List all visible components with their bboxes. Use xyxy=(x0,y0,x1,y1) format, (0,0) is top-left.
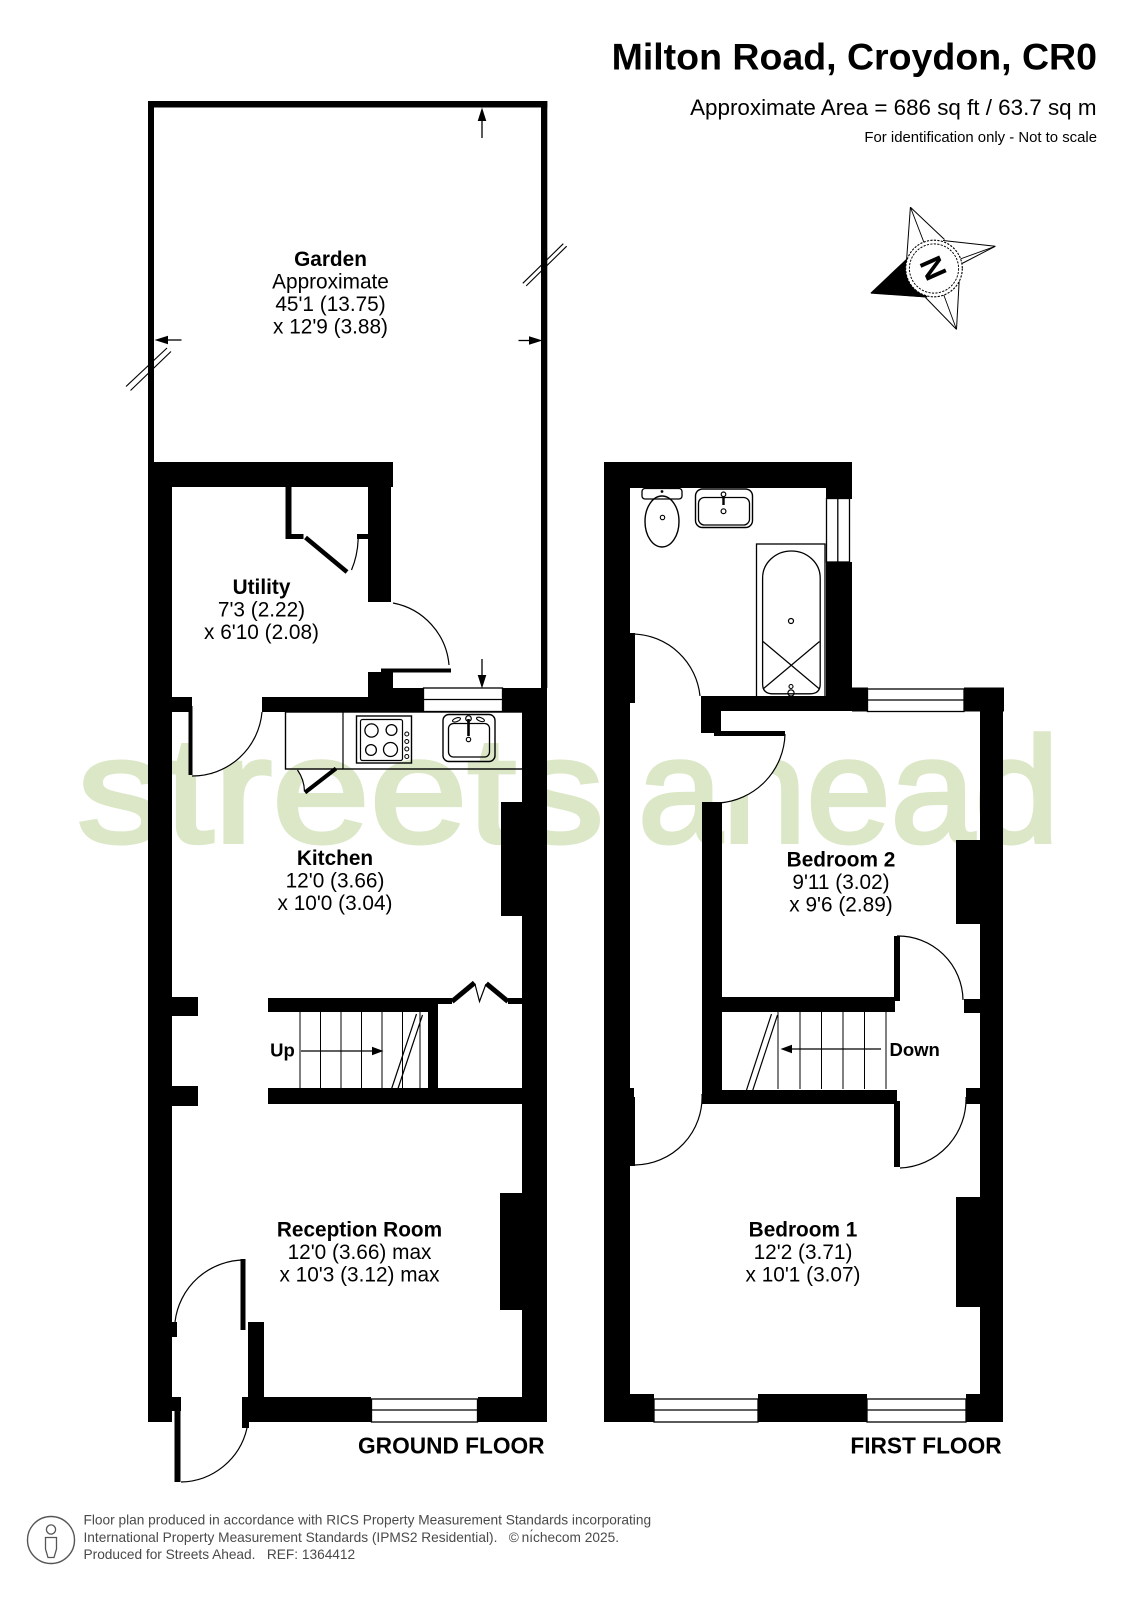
svg-text:For identification only - Not: For identification only - Not to scale xyxy=(864,130,1097,146)
svg-text:45'1 (13.75): 45'1 (13.75) xyxy=(275,293,385,316)
svg-text:x 10'1 (3.07): x 10'1 (3.07) xyxy=(746,1264,861,1287)
svg-text:Approximate Area = 686 sq ft /: Approximate Area = 686 sq ft / 63.7 sq m xyxy=(690,95,1096,120)
svg-text:Utility: Utility xyxy=(233,576,291,599)
svg-text:Approximate: Approximate xyxy=(272,271,389,294)
svg-text:International Property Measure: International Property Measurement Stand… xyxy=(84,1530,620,1545)
svg-text:GROUND FLOOR: GROUND FLOOR xyxy=(358,1433,545,1459)
svg-text:12'0 (3.66) max: 12'0 (3.66) max xyxy=(288,1241,432,1264)
svg-text:Bedroom 2: Bedroom 2 xyxy=(787,849,896,872)
svg-text:Kitchen: Kitchen xyxy=(297,847,373,870)
svg-text:x 6'10 (2.08): x 6'10 (2.08) xyxy=(204,621,319,644)
svg-text:Garden: Garden xyxy=(294,248,367,271)
svg-text:Reception Room: Reception Room xyxy=(277,1219,442,1242)
svg-text:9'11 (3.02): 9'11 (3.02) xyxy=(792,871,889,894)
svg-text:7'3 (2.22): 7'3 (2.22) xyxy=(218,599,305,622)
svg-text:Up: Up xyxy=(270,1040,295,1061)
svg-text:FIRST FLOOR: FIRST FLOOR xyxy=(850,1433,1001,1459)
svg-text:x 9'6 (2.89): x 9'6 (2.89) xyxy=(789,894,892,917)
svg-text:Produced for Streets Ahead.: Produced for Streets Ahead. REF: 1364412 xyxy=(84,1547,356,1562)
svg-text:Floor plan produced in accorda: Floor plan produced in accordance with R… xyxy=(84,1513,652,1528)
svg-text:12'0 (3.66): 12'0 (3.66) xyxy=(286,870,385,893)
svg-text:x 10'0 (3.04): x 10'0 (3.04) xyxy=(278,892,393,915)
svg-text:x 12'9 (3.88): x 12'9 (3.88) xyxy=(273,316,388,339)
svg-text:Milton Road, Croydon, CR0: Milton Road, Croydon, CR0 xyxy=(612,36,1097,78)
svg-text:12'2 (3.71): 12'2 (3.71) xyxy=(754,1241,853,1264)
svg-text:x 10'3 (3.12) max: x 10'3 (3.12) max xyxy=(279,1264,440,1287)
svg-text:Down: Down xyxy=(890,1039,940,1060)
svg-text:Bedroom 1: Bedroom 1 xyxy=(749,1219,858,1242)
